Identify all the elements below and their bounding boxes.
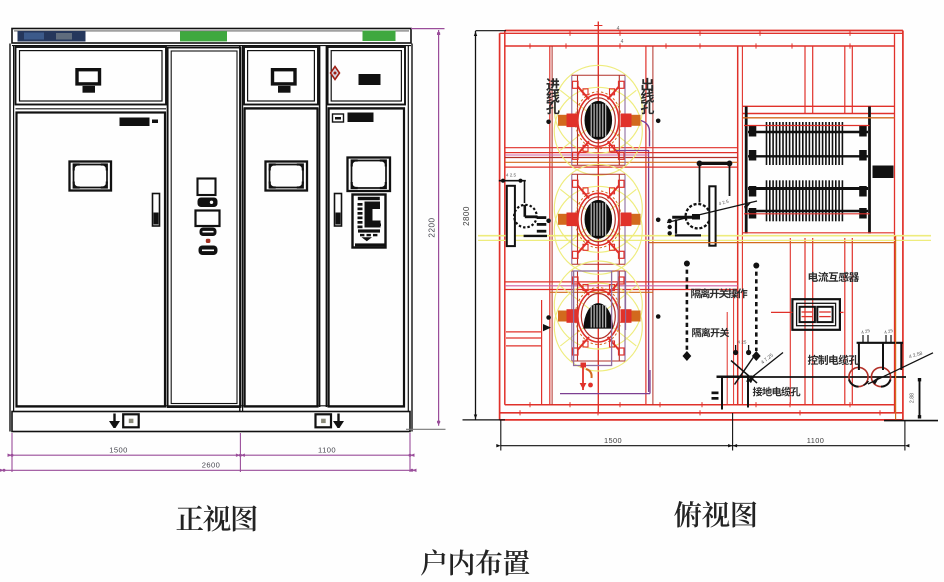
svg-text:1500: 1500 <box>109 445 128 454</box>
svg-text:1500: 1500 <box>604 436 622 445</box>
svg-text:2200: 2200 <box>428 217 437 237</box>
svg-text:2.88: 2.88 <box>910 393 916 403</box>
svg-text:1100: 1100 <box>318 445 336 454</box>
svg-text:4 25: 4 25 <box>738 340 747 345</box>
svg-text:2600: 2600 <box>202 461 221 470</box>
svg-text:4 2.5: 4 2.5 <box>506 173 517 178</box>
svg-text:4: 4 <box>621 39 624 45</box>
svg-text:1100: 1100 <box>807 436 825 445</box>
svg-text:2800: 2800 <box>462 206 471 226</box>
svg-text:4: 4 <box>617 26 620 32</box>
